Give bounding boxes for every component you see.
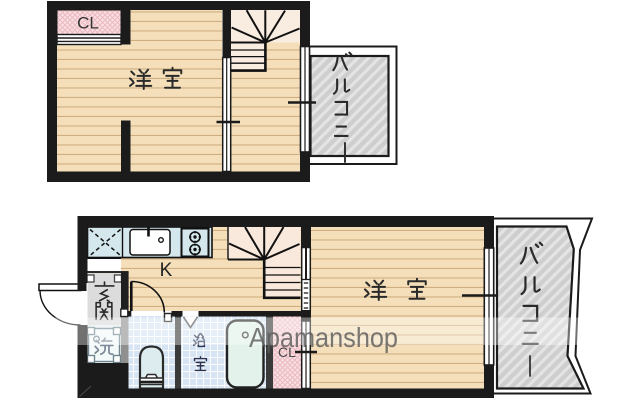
svg-text:CL: CL	[77, 14, 99, 33]
svg-text:K: K	[160, 260, 173, 281]
svg-text:Apamanshop: Apamanshop	[249, 322, 398, 353]
